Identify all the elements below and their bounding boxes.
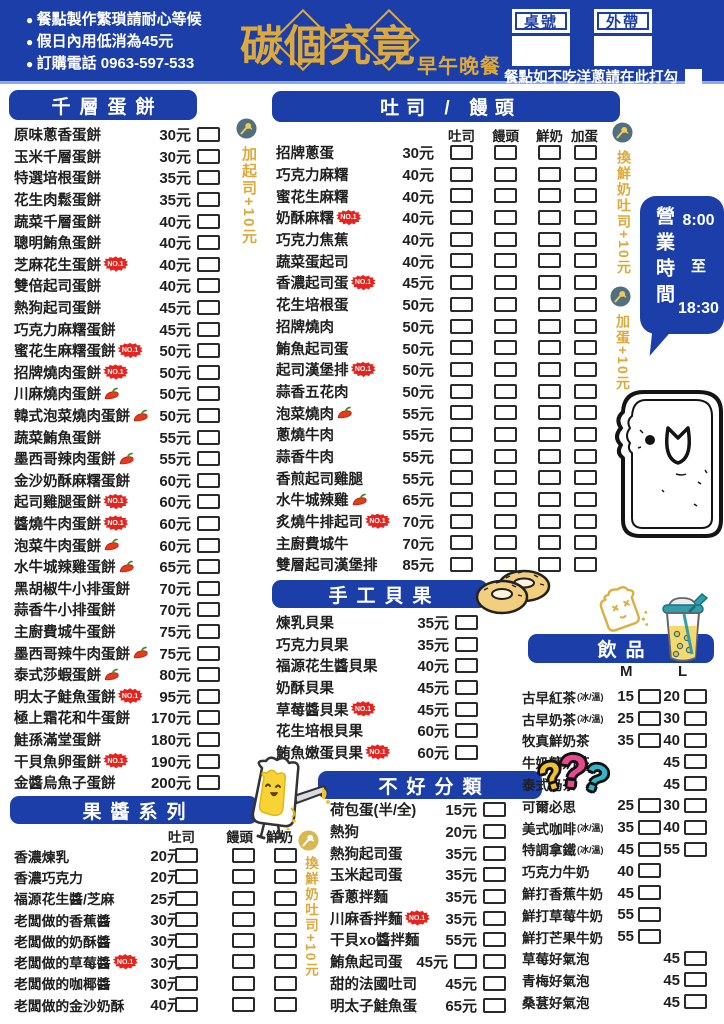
order-checkbox[interactable] — [538, 167, 561, 182]
menu-item-row: 福源花生醬貝果40元 — [276, 655, 478, 677]
item-price: 55 — [606, 928, 634, 945]
order-checkbox[interactable] — [197, 538, 220, 553]
order-checkbox[interactable] — [197, 408, 220, 423]
menu-item-row: 奶酥麻糬NO.140元 — [276, 207, 606, 229]
menu-item-row: 川麻香拌麵NO.135元 — [330, 907, 506, 929]
no1-badge: NO.1 — [118, 688, 143, 704]
order-checkbox[interactable] — [494, 340, 517, 355]
item-price: 45 — [654, 950, 680, 967]
item-price: 45 — [606, 841, 634, 858]
order-checkbox[interactable] — [232, 954, 255, 969]
order-checkbox[interactable] — [574, 362, 597, 377]
order-checkbox[interactable] — [538, 384, 561, 399]
order-checkbox[interactable] — [197, 127, 220, 142]
item-price: 40元 — [392, 229, 434, 250]
no1-badge: NO.1 — [405, 910, 430, 926]
item-price: 30 — [654, 797, 680, 814]
item-name: 招牌燒肉 — [276, 316, 334, 337]
order-checkbox[interactable] — [197, 257, 220, 272]
order-checkbox[interactable] — [175, 891, 198, 906]
order-checkbox[interactable] — [175, 954, 198, 969]
menu-item-row: 煉乳貝果35元 — [276, 612, 478, 634]
order-checkbox[interactable] — [197, 192, 220, 207]
order-checkbox[interactable] — [450, 319, 473, 334]
menu-item-row: 泡菜牛肉蛋餅60元 — [14, 534, 220, 556]
item-name: 招牌燒肉蛋餅 — [14, 362, 101, 383]
order-checkbox[interactable] — [455, 723, 478, 738]
item-name: 芝麻花生蛋餅 — [14, 254, 101, 275]
item-name: 蒜香五花肉 — [276, 381, 349, 402]
order-checkbox[interactable] — [450, 297, 473, 312]
item-price: 35元 — [445, 864, 477, 885]
item-name: 煉乳貝果 — [276, 612, 334, 633]
item-name: 巧克力貝果 — [276, 634, 349, 655]
order-checkbox[interactable] — [197, 235, 220, 250]
order-checkbox[interactable] — [450, 232, 473, 247]
menu-item-row: 招牌蔥蛋30元 — [276, 142, 606, 164]
menu-item-row: 巧克力牛奶40 — [522, 860, 724, 882]
order-checkbox[interactable] — [483, 954, 506, 969]
order-checkbox[interactable] — [450, 492, 473, 507]
order-checkbox[interactable] — [455, 637, 478, 652]
order-checkbox[interactable] — [483, 911, 506, 926]
toast-doodle-icon — [591, 578, 653, 637]
order-checkbox[interactable] — [494, 362, 517, 377]
order-checkbox[interactable] — [538, 145, 561, 160]
order-checkbox[interactable] — [450, 188, 473, 203]
order-checkbox[interactable] — [538, 427, 561, 442]
order-checkbox[interactable] — [574, 449, 597, 464]
order-checkbox[interactable] — [232, 933, 255, 948]
order-checkbox[interactable] — [197, 365, 220, 380]
order-checkbox[interactable] — [232, 997, 255, 1012]
order-checkbox[interactable] — [455, 680, 478, 695]
order-checkbox[interactable] — [684, 842, 707, 857]
item-price: 170元 — [151, 707, 191, 728]
menu-item-row: 極上霜花和牛蛋餅170元 — [14, 707, 220, 729]
order-checkbox[interactable] — [274, 933, 297, 948]
order-checkbox[interactable] — [197, 214, 220, 229]
order-checkbox[interactable] — [450, 557, 473, 572]
order-checkbox[interactable] — [197, 494, 220, 509]
order-checkbox[interactable] — [574, 427, 597, 442]
chili-icon — [118, 560, 135, 574]
order-checkbox[interactable] — [274, 869, 297, 884]
takeout-box[interactable]: 外帶 — [594, 9, 652, 66]
order-checkbox[interactable] — [638, 929, 661, 944]
item-name: 墨西哥辣肉蛋餅 — [14, 448, 116, 469]
item-name: 雙層起司漢堡排 — [276, 554, 378, 575]
menu-item-row: 聰明鮪魚蛋餅40元 — [14, 232, 220, 254]
order-checkbox[interactable] — [450, 210, 473, 225]
order-checkbox[interactable] — [574, 253, 597, 268]
item-price: 20 — [654, 688, 680, 705]
order-checkbox[interactable] — [684, 798, 707, 813]
order-checkbox[interactable] — [274, 997, 297, 1012]
open-time: 8:00 — [682, 212, 714, 230]
item-name: 鮭孫滿堂蛋餅 — [14, 729, 101, 750]
menu-item-row: 老闆做的咖椰醬30元 — [14, 973, 314, 994]
order-checkbox[interactable] — [175, 997, 198, 1012]
menu-item-row: 干貝魚卵蛋餅NO.1190元 — [14, 750, 220, 772]
item-name: 古早奶茶 — [522, 709, 576, 729]
order-checkbox[interactable] — [574, 384, 597, 399]
item-price: 40 — [606, 863, 634, 880]
item-price: 45元 — [159, 319, 191, 340]
order-checkbox[interactable] — [274, 976, 297, 991]
bagel-item-list: 煉乳貝果35元巧克力貝果35元福源花生醬貝果40元奶酥貝果45元草莓醬貝果NO.… — [276, 612, 478, 763]
order-checkbox[interactable] — [574, 167, 597, 182]
order-checkbox[interactable] — [454, 954, 477, 969]
menu-item-row: 蒜香牛肉55元 — [276, 446, 606, 468]
menu-item-row: 蔬菜千層蛋餅40元 — [14, 210, 220, 232]
item-price: 55元 — [392, 403, 434, 424]
takeout-input-area[interactable] — [594, 36, 652, 66]
order-checkbox[interactable] — [450, 535, 473, 550]
chili-icon — [103, 538, 120, 552]
order-checkbox[interactable] — [538, 210, 561, 225]
order-checkbox[interactable] — [455, 745, 478, 760]
order-checkbox[interactable] — [684, 754, 707, 769]
order-checkbox[interactable] — [538, 297, 561, 312]
item-price: 40元 — [159, 211, 191, 232]
item-name: 主廚費城牛 — [276, 533, 349, 554]
item-price: 55元 — [392, 468, 434, 489]
order-checkbox[interactable] — [494, 384, 517, 399]
item-name: 巧克力牛奶 — [522, 861, 590, 881]
order-checkbox[interactable] — [494, 167, 517, 182]
order-checkbox[interactable] — [574, 210, 597, 225]
order-checkbox[interactable] — [684, 711, 707, 726]
item-price: 45元 — [392, 272, 434, 293]
order-checkbox[interactable] — [494, 253, 517, 268]
order-checkbox[interactable] — [684, 994, 707, 1009]
order-checkbox[interactable] — [175, 933, 198, 948]
item-note: (冰/溫) — [577, 843, 604, 856]
order-checkbox[interactable] — [450, 167, 473, 182]
item-price: 50元 — [392, 359, 434, 380]
order-checkbox[interactable] — [684, 776, 707, 791]
item-name: 青梅好氣泡 — [522, 970, 590, 990]
order-checkbox[interactable] — [638, 885, 661, 900]
item-price: 80元 — [159, 664, 191, 685]
order-checkbox[interactable] — [232, 848, 255, 863]
menu-item-row: 主廚費城牛70元 — [276, 532, 606, 554]
order-checkbox[interactable] — [684, 733, 707, 748]
order-checkbox[interactable] — [483, 802, 506, 817]
menu-item-row: 明太子鮭魚蛋餅NO.195元 — [14, 685, 220, 707]
item-price: 65元 — [159, 556, 191, 577]
order-checkbox[interactable] — [494, 232, 517, 247]
item-name: 招牌蔥蛋 — [276, 142, 334, 163]
chili-icon — [132, 646, 149, 660]
order-checkbox[interactable] — [232, 891, 255, 906]
no1-badge: NO.1 — [103, 256, 128, 272]
order-checkbox[interactable] — [197, 149, 220, 164]
order-checkbox[interactable] — [274, 891, 297, 906]
order-checkbox[interactable] — [684, 689, 707, 704]
order-checkbox[interactable] — [684, 820, 707, 835]
order-checkbox[interactable] — [494, 210, 517, 225]
order-checkbox[interactable] — [197, 602, 220, 617]
item-price: 35元 — [417, 612, 449, 633]
order-checkbox[interactable] — [574, 188, 597, 203]
order-checkbox[interactable] — [684, 972, 707, 987]
order-checkbox[interactable] — [175, 869, 198, 884]
menu-item-row: 老闆做的金沙奶酥40元 — [14, 994, 314, 1015]
order-checkbox[interactable] — [175, 848, 198, 863]
order-checkbox[interactable] — [574, 557, 597, 572]
no1-badge: NO.1 — [336, 210, 361, 226]
order-checkbox[interactable] — [455, 702, 478, 717]
item-name: 雙倍起司蛋餅 — [14, 275, 101, 296]
chili-icon — [103, 668, 120, 682]
order-checkbox[interactable] — [494, 492, 517, 507]
order-checkbox[interactable] — [494, 188, 517, 203]
order-checkbox[interactable] — [450, 362, 473, 377]
menu-item-row: 芝麻花生蛋餅NO.140元 — [14, 254, 220, 276]
menu-item-row: 花生培根貝果60元 — [276, 720, 478, 742]
bagel-illustration — [476, 566, 552, 616]
order-checkbox[interactable] — [483, 846, 506, 861]
item-name: 極上霜花和牛蛋餅 — [14, 707, 130, 728]
item-price: 40元 — [159, 232, 191, 253]
order-checkbox[interactable] — [450, 340, 473, 355]
order-checkbox[interactable] — [197, 322, 220, 337]
order-checkbox[interactable] — [494, 535, 517, 550]
item-name: 奶酥貝果 — [276, 677, 334, 698]
item-name: 金醬烏魚子蛋餅 — [14, 772, 116, 793]
item-name: 蒜香牛肉 — [276, 446, 334, 467]
item-name: 巧克力麻糬蛋餅 — [14, 319, 116, 340]
order-checkbox[interactable] — [538, 535, 561, 550]
item-name: 蔬菜鮪魚蛋餅 — [14, 427, 101, 448]
menu-item-row: 干貝xo醬拌麵55元 — [330, 929, 506, 951]
menu-item-row: 熱狗起司蛋35元 — [330, 842, 506, 864]
item-name: 黑胡椒牛小排蛋餅 — [14, 578, 130, 599]
order-checkbox[interactable] — [574, 340, 597, 355]
order-checkbox[interactable] — [538, 470, 561, 485]
order-checkbox[interactable] — [197, 343, 220, 358]
order-checkbox[interactable] — [455, 658, 478, 673]
menu-item-row: 鮭孫滿堂蛋餅180元 — [14, 729, 220, 751]
order-checkbox[interactable] — [494, 145, 517, 160]
jam-column-toast: 吐司 — [168, 826, 195, 846]
order-checkbox[interactable] — [494, 297, 517, 312]
item-name: 鮮打草莓牛奶 — [522, 905, 603, 925]
order-checkbox[interactable] — [450, 449, 473, 464]
order-checkbox[interactable] — [494, 319, 517, 334]
menu-item-row: 金醬烏魚子蛋餅200元 — [14, 772, 220, 794]
order-checkbox[interactable] — [574, 492, 597, 507]
item-price: 55 — [654, 841, 680, 858]
order-checkbox[interactable] — [450, 470, 473, 485]
size-label-l: L — [678, 663, 687, 680]
close-time: 18:30 — [678, 300, 719, 318]
item-name: 特選培根蛋餅 — [14, 167, 101, 188]
banner-note: 假日內用低消為45元 — [26, 31, 202, 53]
item-price: 65元 — [392, 489, 434, 510]
order-checkbox[interactable] — [197, 386, 220, 401]
order-checkbox[interactable] — [450, 253, 473, 268]
item-name: 干貝xo醬拌麵 — [330, 929, 419, 950]
order-checkbox[interactable] — [197, 754, 220, 769]
order-checkbox[interactable] — [197, 710, 220, 725]
order-checkbox[interactable] — [483, 867, 506, 882]
order-checkbox[interactable] — [197, 516, 220, 531]
order-checkbox[interactable] — [197, 451, 220, 466]
order-checkbox[interactable] — [494, 275, 517, 290]
order-checkbox[interactable] — [197, 581, 220, 596]
menu-item-row: 福源花生醬/芝麻25元 — [14, 888, 314, 909]
order-checkbox[interactable] — [538, 275, 561, 290]
item-name: 川麻香拌麵 — [330, 908, 403, 929]
restaurant-logo: 碳個究竟 — [240, 12, 416, 74]
order-checkbox[interactable] — [232, 912, 255, 927]
item-price: 30元 — [159, 146, 191, 167]
item-name: 鮪魚起司蛋 — [276, 338, 349, 359]
banner-note: 餐點製作繁瑣請耐心等候 — [26, 9, 202, 31]
item-name: 水牛城辣雞蛋餅 — [14, 556, 116, 577]
order-checkbox[interactable] — [197, 732, 220, 747]
order-checkbox[interactable] — [538, 232, 561, 247]
order-checkbox[interactable] — [538, 405, 561, 420]
item-name: 蔬菜千層蛋餅 — [14, 211, 101, 232]
item-price: 35元 — [159, 189, 191, 210]
order-checkbox[interactable] — [197, 646, 220, 661]
item-name: 特調拿鐵 — [522, 839, 576, 859]
order-checkbox[interactable] — [197, 689, 220, 704]
menu-item-row: 泡菜燒肉55元 — [276, 402, 606, 424]
order-checkbox[interactable] — [638, 907, 661, 922]
item-price: 70元 — [159, 599, 191, 620]
order-checkbox[interactable] — [684, 951, 707, 966]
takeout-label: 外帶 — [594, 9, 652, 33]
order-checkbox[interactable] — [232, 976, 255, 991]
misc-item-list: 荷包蛋(半/全)15元熱狗20元熱狗起司蛋35元玉米起司蛋35元香蔥拌麵35元川… — [330, 799, 506, 1016]
order-checkbox[interactable] — [483, 889, 506, 904]
order-checkbox[interactable] — [197, 278, 220, 293]
order-checkbox[interactable] — [450, 514, 473, 529]
order-checkbox[interactable] — [638, 863, 661, 878]
order-checkbox[interactable] — [450, 145, 473, 160]
order-checkbox[interactable] — [574, 405, 597, 420]
menu-item-row: 草莓好氣泡45 — [522, 948, 724, 970]
order-checkbox[interactable] — [450, 405, 473, 420]
item-price: 55元 — [159, 448, 191, 469]
jam-item-list: 香濃煉乳20元香濃巧克力20元福源花生醬/芝麻25元老闆做的香蕉醬30元老闆做的… — [14, 845, 314, 1015]
menu-item-row: 玉米起司蛋35元 — [330, 864, 506, 886]
order-checkbox[interactable] — [197, 170, 220, 185]
order-checkbox[interactable] — [274, 848, 297, 863]
order-checkbox[interactable] — [538, 340, 561, 355]
order-checkbox[interactable] — [483, 824, 506, 839]
item-price: 70元 — [159, 578, 191, 599]
order-checkbox[interactable] — [483, 976, 506, 991]
order-checkbox[interactable] — [197, 624, 220, 639]
order-checkbox[interactable] — [197, 430, 220, 445]
item-name: 福源花生醬貝果 — [276, 655, 378, 676]
item-name: 草莓好氣泡 — [522, 948, 590, 968]
order-checkbox[interactable] — [455, 615, 478, 630]
order-checkbox[interactable] — [197, 300, 220, 315]
table-number-input-area[interactable] — [512, 36, 570, 66]
item-name: 老闆做的金沙奶酥 — [14, 995, 124, 1015]
item-price: 55 — [606, 906, 634, 923]
order-checkbox[interactable] — [574, 232, 597, 247]
order-checkbox[interactable] — [483, 932, 506, 947]
question-marks-icon: ? ? ? — [540, 748, 630, 812]
order-checkbox[interactable] — [450, 275, 473, 290]
order-checkbox[interactable] — [232, 869, 255, 884]
order-checkbox[interactable] — [574, 275, 597, 290]
item-name: 韓式泡菜燒肉蛋餅 — [14, 405, 130, 426]
order-checkbox[interactable] — [274, 954, 297, 969]
order-checkbox[interactable] — [494, 405, 517, 420]
item-price: 30元 — [392, 142, 434, 163]
menu-item-row: 美式咖啡(冰/溫)3540 — [522, 817, 724, 839]
item-price: 50元 — [159, 405, 191, 426]
order-checkbox[interactable] — [538, 253, 561, 268]
order-checkbox[interactable] — [538, 514, 561, 529]
business-hours-bubble: 營業時間 8:00 至 18:30 — [640, 196, 724, 334]
top-banner: 餐點製作繁瑣請耐心等候 假日內用低消為45元 訂購電話 0963-597-533… — [0, 0, 724, 84]
item-price: 55元 — [445, 929, 477, 950]
item-name: 美式咖啡 — [522, 818, 576, 838]
order-checkbox[interactable] — [197, 775, 220, 790]
business-hours-title: 營業時間 — [650, 206, 677, 324]
item-note: (冰/溫) — [577, 821, 604, 834]
order-checkbox[interactable] — [197, 473, 220, 488]
order-checkbox[interactable] — [538, 449, 561, 464]
note-swap-milk-toast: 換鮮奶吐司+10元 — [614, 150, 634, 276]
menu-item-row: 古早奶茶(冰/溫)2530 — [522, 708, 724, 730]
order-checkbox[interactable] — [574, 470, 597, 485]
order-checkbox[interactable] — [450, 384, 473, 399]
item-price: 40元 — [392, 251, 434, 272]
order-checkbox[interactable] — [494, 470, 517, 485]
order-checkbox[interactable] — [197, 667, 220, 682]
order-checkbox[interactable] — [574, 514, 597, 529]
order-checkbox[interactable] — [574, 297, 597, 312]
menu-item-row: 特調拿鐵(冰/溫)4555 — [522, 839, 724, 861]
order-checkbox[interactable] — [274, 912, 297, 927]
no-onion-checkbox[interactable] — [685, 69, 702, 84]
order-checkbox[interactable] — [574, 535, 597, 550]
order-checkbox[interactable] — [538, 362, 561, 377]
menu-item-row: 原味蔥香蛋餅30元 — [14, 124, 220, 146]
item-price: 40元 — [392, 186, 434, 207]
order-checkbox[interactable] — [175, 912, 198, 927]
order-checkbox[interactable] — [538, 319, 561, 334]
order-checkbox[interactable] — [574, 319, 597, 334]
chili-icon — [132, 409, 149, 423]
order-checkbox[interactable] — [494, 449, 517, 464]
table-number-label: 桌號 — [512, 9, 570, 33]
order-checkbox[interactable] — [494, 514, 517, 529]
order-checkbox[interactable] — [538, 188, 561, 203]
order-checkbox[interactable] — [450, 427, 473, 442]
order-checkbox[interactable] — [494, 427, 517, 442]
menu-item-row: 墨西哥辣肉蛋餅55元 — [14, 448, 220, 470]
order-checkbox[interactable] — [197, 559, 220, 574]
order-checkbox[interactable] — [538, 492, 561, 507]
item-name: 泰式莎蝦蛋餅 — [14, 664, 101, 685]
order-checkbox[interactable] — [574, 145, 597, 160]
order-checkbox[interactable] — [483, 998, 506, 1013]
order-checkbox[interactable] — [175, 976, 198, 991]
table-number-box[interactable]: 桌號 — [512, 9, 570, 66]
